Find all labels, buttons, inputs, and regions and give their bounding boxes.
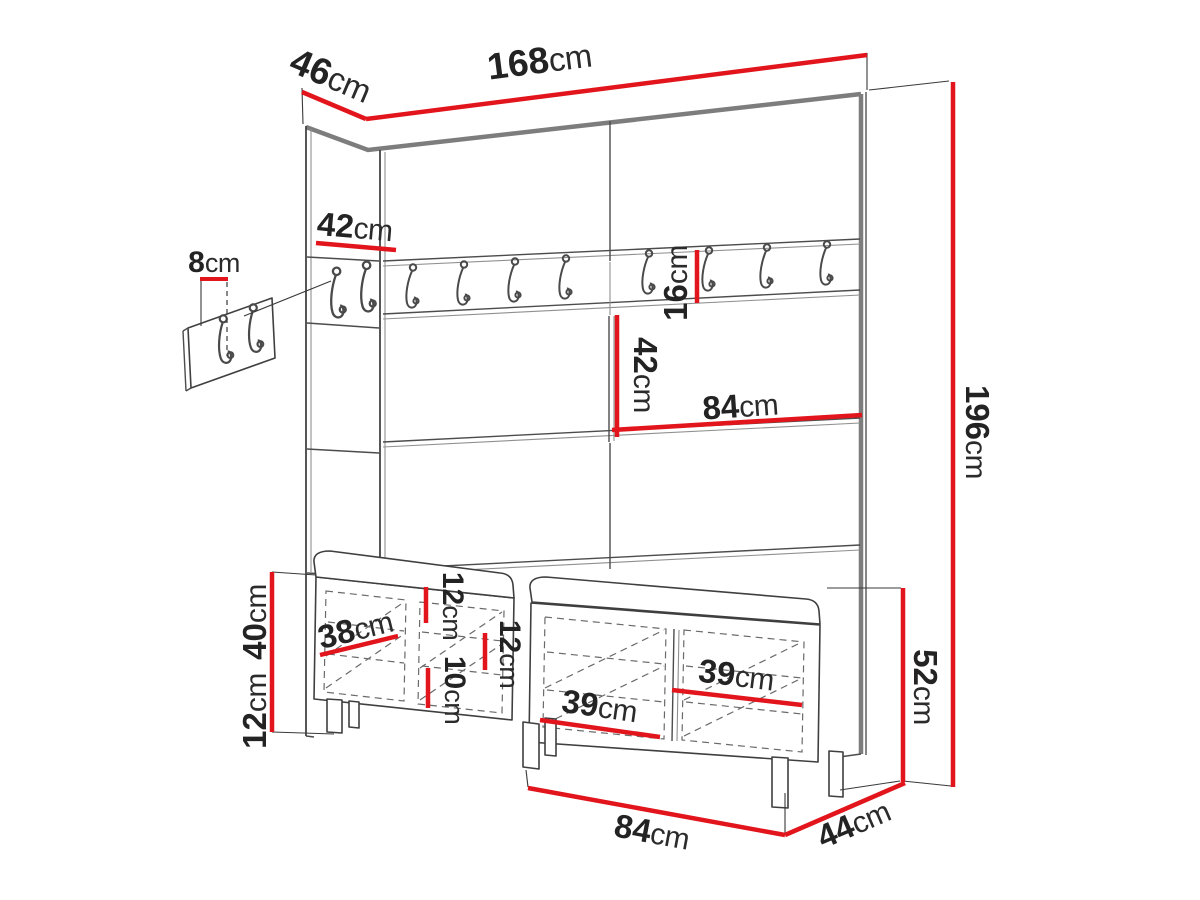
dim-hook-offset-label: 8cm (188, 246, 240, 279)
hook-detail-panel (183, 280, 331, 391)
dim-rail-height-label: 16cm (657, 245, 694, 321)
dim-bench-body-height-label: 40cm (236, 584, 273, 660)
dim-side-panel-width-label: 42cm (316, 205, 395, 248)
dim-side-depth-label: 46cm (284, 40, 377, 111)
coat-hook-icon (406, 264, 418, 307)
furniture-dimension-diagram: 46cm 168cm 42cm 8cm 16cm 42cm 84cm 196cm… (0, 0, 1200, 900)
coat-hook-icon (329, 267, 347, 318)
coat-hook-icon (642, 250, 654, 293)
wall-top-edge (306, 94, 861, 150)
dim-bench-depth-label: 44cm (811, 791, 895, 855)
dim-bench-leg-height-label: 12cm (236, 673, 273, 749)
diagram-canvas: 46cm 168cm 42cm 8cm 16cm 42cm 84cm 196cm… (0, 0, 1200, 900)
dim-shelf-gap-mid-label: 12cm (493, 620, 526, 688)
coat-hook-icon (508, 258, 520, 301)
coat-hook-icon (760, 244, 772, 287)
dim-total-width-label: 168cm (485, 34, 594, 88)
dim-bench-total-height-label: 52cm (907, 649, 944, 725)
dim-mid-panel-height-label: 42cm (627, 337, 664, 413)
coat-hook-icon (457, 261, 469, 304)
dim-total-height-label: 196cm (959, 385, 996, 479)
dim-shelf-gap-bottom-label: 10cm (438, 656, 471, 724)
detail-pointer-line (244, 281, 331, 316)
coat-hook-rail (329, 241, 833, 318)
dim-shelf-gap-top-label: 12cm (436, 572, 469, 640)
shoe-bench-right (529, 577, 820, 762)
coat-hook-icon (820, 241, 832, 284)
coat-hook-icon (702, 247, 714, 290)
dim-mid-panel-width-label: 84cm (701, 384, 779, 426)
coat-hook-icon (359, 261, 377, 312)
coat-hook-icon (559, 255, 571, 298)
dim-total-width-line (366, 55, 867, 119)
